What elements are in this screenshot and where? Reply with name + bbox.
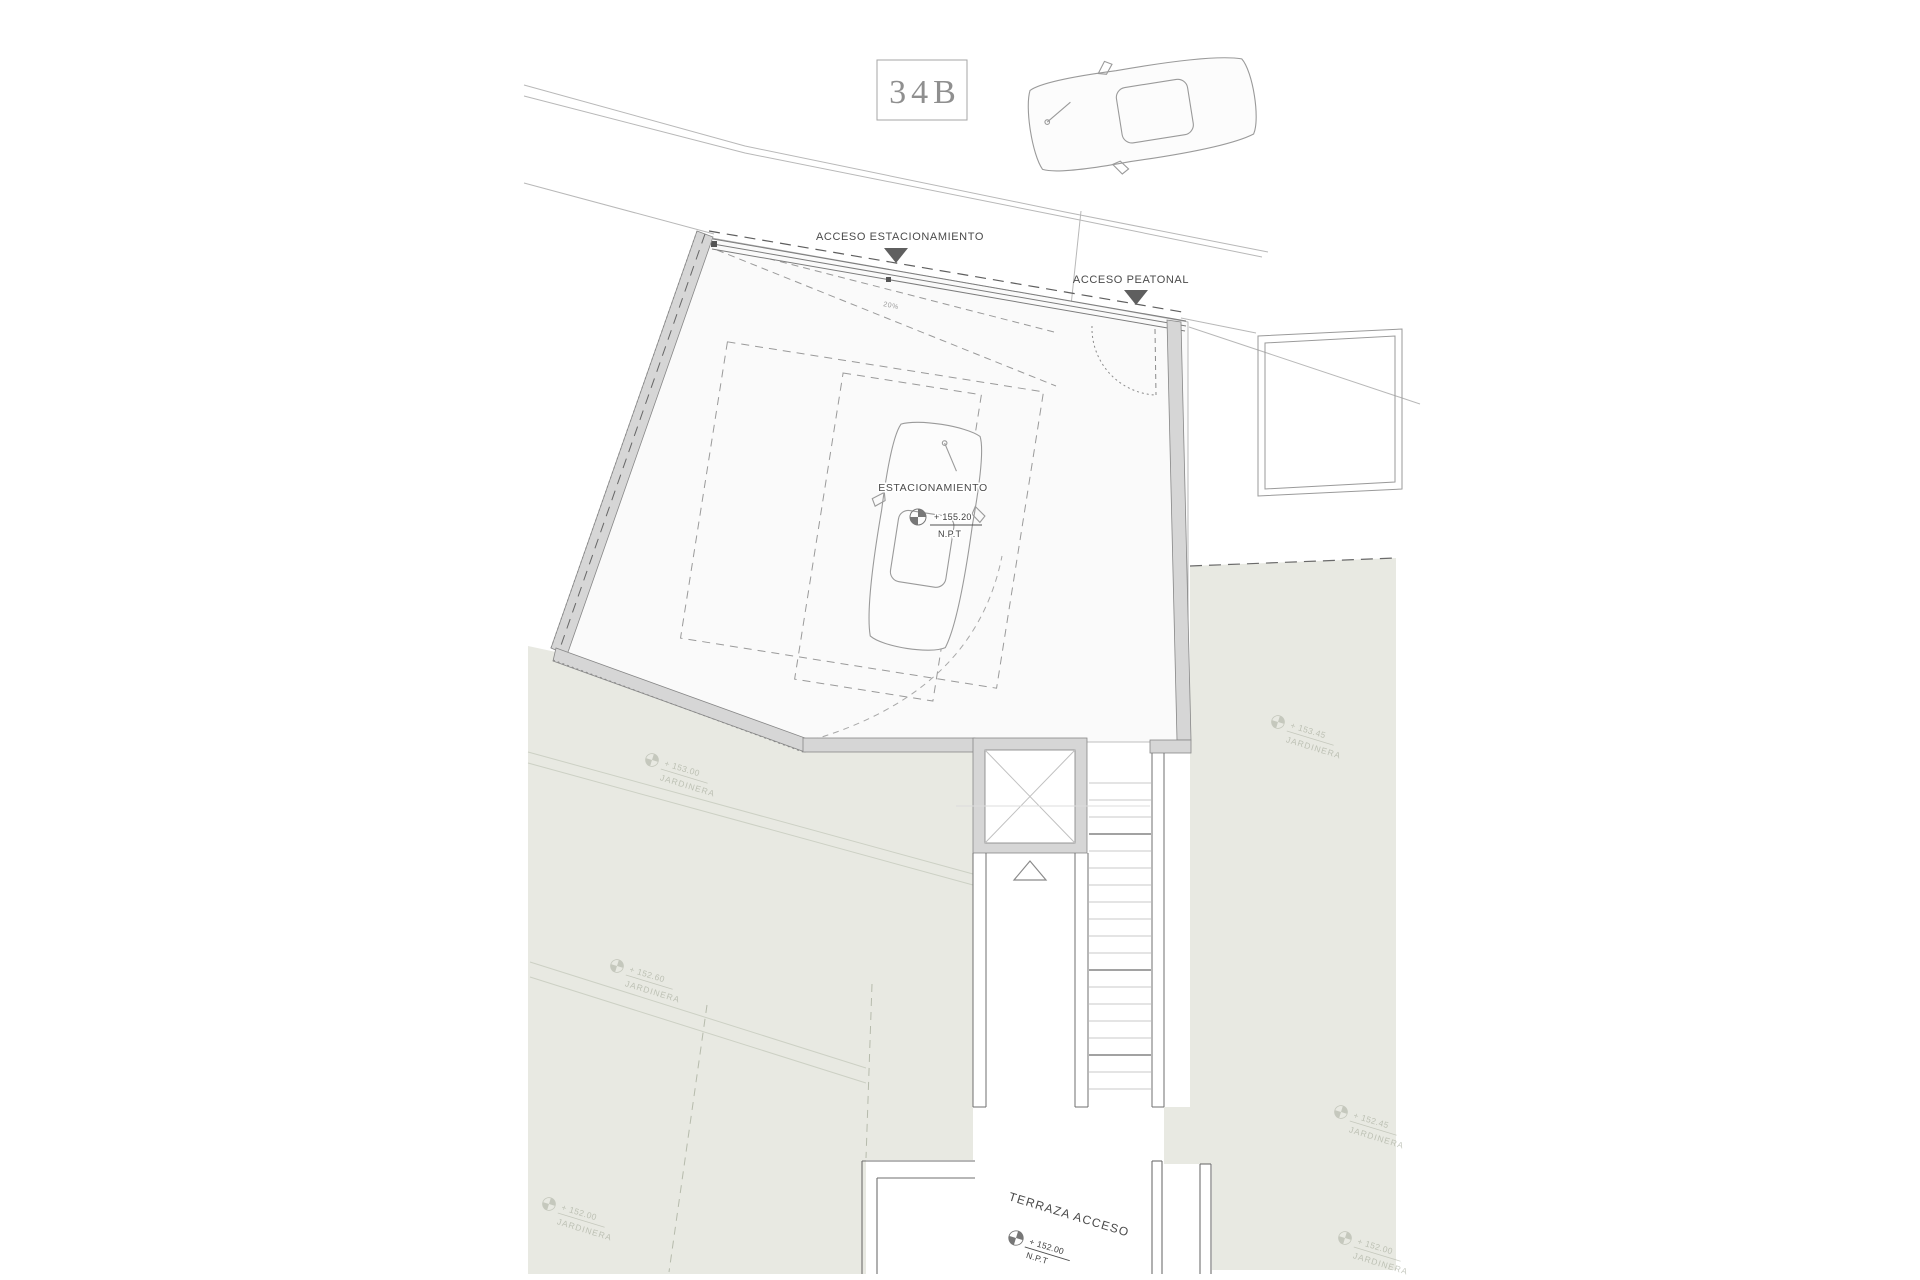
core <box>956 738 1164 1107</box>
level-marker-icon <box>910 509 926 525</box>
neighbor-lot <box>1258 329 1402 496</box>
access-parking-label: ACCESO ESTACIONAMIENTO <box>816 231 984 243</box>
parking-datum: N.P.T <box>938 529 962 539</box>
access-parking-arrow <box>884 248 908 263</box>
terrace-name: TERRAZA ACCESO <box>1007 1189 1131 1239</box>
access-pedestrian-label: ACCESO PEATONAL <box>1073 274 1189 286</box>
direction-triangle <box>1014 861 1046 880</box>
wall-right-step <box>1150 740 1191 753</box>
gate-post <box>886 277 891 282</box>
car-street <box>1021 39 1263 187</box>
unit-label-box: 34B <box>877 60 967 120</box>
stair-treads <box>1089 783 1151 1089</box>
access-parking-callout: ACCESO ESTACIONAMIENTO <box>816 231 984 263</box>
wall-bottom-horizontal <box>803 738 975 752</box>
level-marker-icon <box>1007 1229 1025 1247</box>
access-pedestrian-callout: ACCESO PEATONAL <box>1073 274 1189 305</box>
terrace-label-group: TERRAZA ACCESO + 152.00 N.P.T <box>1004 1189 1131 1272</box>
gate-post <box>711 241 717 247</box>
plan-sheet: 34B 20% <box>0 0 1920 1280</box>
terrace-datum: N.P.T <box>1025 1250 1049 1266</box>
unit-label: 34B <box>889 74 961 111</box>
floor-plan-svg: 34B 20% <box>0 0 1920 1280</box>
planter-area-right <box>1164 558 1396 1270</box>
parking-level: + 155.20 <box>934 512 972 522</box>
parking-name: ESTACIONAMIENTO <box>878 482 988 494</box>
parking-floor <box>558 238 1188 742</box>
